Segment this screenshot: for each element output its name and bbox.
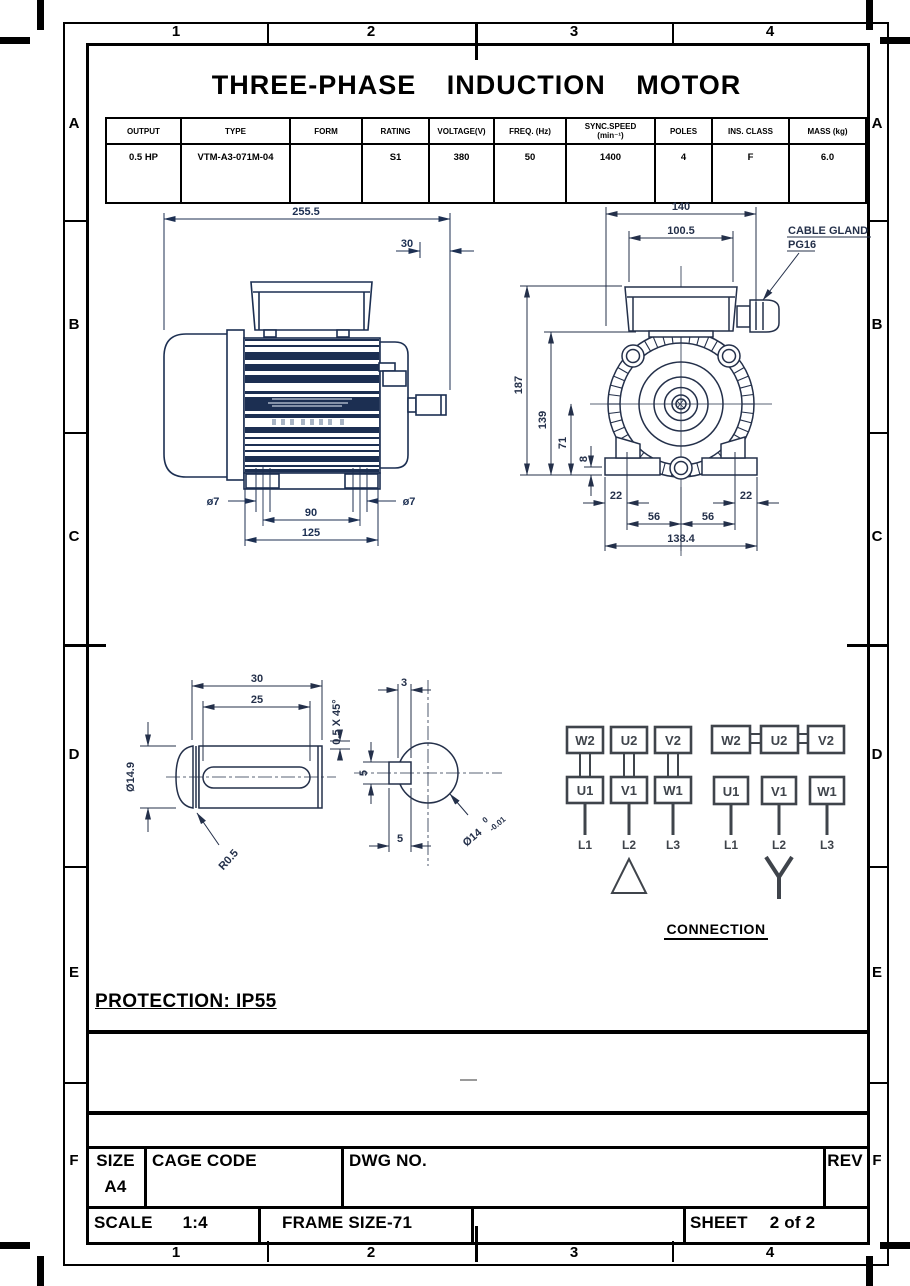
drawing-canvas: 255.5 30 ø7 ø7 90 125 [0,0,910,1286]
line-label: L1 [724,838,738,852]
dim-foot-length: 125 [302,527,320,539]
bolt-boss [718,345,740,367]
dim-box-width: 100.5 [667,225,695,237]
connection-diagram: W2 U2 V2 U1 V1 W1 L1 L2 L3 W2 U2 V2 U1 [567,726,844,939]
rev-label: REV [825,1151,865,1171]
star-connection: W2 U2 V2 U1 V1 W1 L1 L2 L3 [712,726,844,899]
terminal: W1 [663,783,683,798]
dim-height: 187 [513,376,525,394]
sheet-label: SHEET [690,1213,748,1233]
lug [379,363,395,371]
dim-width: 140 [672,201,690,213]
terminal-box-side [251,282,372,330]
line-label: L1 [578,838,592,852]
cage-code-label: CAGE CODE [152,1151,257,1171]
dim-body-top: 139 [537,411,549,429]
delta-symbol [612,859,646,893]
dim-base: 138.4 [667,533,695,545]
terminal: V1 [621,783,637,798]
protection-note: PROTECTION: IP55 [95,991,277,1013]
divider-line [86,1111,867,1115]
cable-gland [737,306,750,327]
connection-caption: CONNECTION [666,921,765,937]
terminal: V1 [771,784,787,799]
title-block-divider [471,1209,474,1242]
line-label: L2 [772,838,786,852]
terminal: W2 [575,733,595,748]
sheet-value: 2 of 2 [770,1213,816,1233]
scale-value: 1:4 [183,1213,208,1233]
size-value: A4 [89,1177,142,1197]
terminal: V2 [818,733,834,748]
dim-hole-right: ø7 [403,496,416,508]
dim-span-right: 56 [702,511,714,523]
dim-hole-span: 90 [305,507,317,519]
size-label: SIZE [89,1151,142,1171]
dim-off-left: 22 [610,490,622,502]
title-block-divider [683,1209,686,1242]
dim-shaft-length: 30 [401,238,413,250]
dim-fillet: R0.5 [217,847,241,872]
terminal-box-front [625,287,737,331]
fan-cover [164,334,229,477]
terminal: V2 [665,733,681,748]
terminal: W2 [721,733,741,748]
shaft-side-detail: 30 25 0.5 X 45° Ø14.9 R0.5 [125,673,350,873]
dim-span-left: 56 [648,511,660,523]
title-block-top-line [86,1146,867,1149]
drawing-sheet: 1 2 3 4 1 2 3 4 A B C D E F A B C D E F … [0,0,910,1286]
svg-text:Ø14: Ø14 [461,826,485,849]
terminal: U2 [621,733,638,748]
dim-shaft-dia: Ø14.9 [125,762,137,792]
dim-key-depth: 3 [401,677,407,689]
dim-off-right: 22 [740,490,752,502]
fan-cover-flange [227,330,244,480]
foot-right [702,458,757,475]
terminal: U2 [771,733,788,748]
dwg-no-label: DWG NO. [349,1151,427,1171]
terminal: U1 [577,783,594,798]
title-block-divider [144,1149,147,1206]
bolt-boss [622,345,644,367]
dim-key-width: 5 [358,770,370,776]
title-block-mid-line [86,1206,867,1209]
foot-left [605,458,660,475]
dim-overall-length: 255.5 [292,206,320,218]
svg-text:-0.01: -0.01 [488,814,508,833]
shaft-end-dimensions: 3 5 5 Ø14 0 -0.01 [358,677,508,852]
dim-hole-left: ø7 [207,496,220,508]
dim-key-width-bottom: 5 [397,833,403,845]
front-view-dimensions: 140 100.5 CABLE GLAND PG16 187 139 71 [513,201,871,551]
line-label: L3 [666,838,680,852]
dim-pad: 8 [578,456,590,462]
motor-side-view: 255.5 30 ø7 ø7 90 125 [164,206,474,546]
shaft-end-detail: 3 5 5 Ø14 0 -0.01 [354,677,508,866]
terminal: U1 [723,784,740,799]
cable-gland-label: CABLE GLAND [788,225,868,237]
dim-axis-height: 71 [557,437,569,449]
terminal: W1 [817,784,837,799]
frame-size-label: FRAME SIZE-71 [282,1213,412,1233]
dim-key-len: 25 [251,694,263,706]
lug [383,371,406,386]
dim-chamfer: 0.5 X 45° [331,699,343,744]
motor-front-view: 140 100.5 CABLE GLAND PG16 187 139 71 [513,201,871,556]
dim-shaft-len: 30 [251,673,263,685]
line-label: L3 [820,838,834,852]
delta-connection: W2 U2 V2 U1 V1 W1 L1 L2 L3 [567,727,691,893]
svg-text:0: 0 [481,815,491,825]
bolt-boss-bottom [670,457,692,479]
star-symbol [766,857,792,899]
cable-gland-size: PG16 [788,239,816,251]
shaft-step [408,398,416,412]
front-endbell [380,342,408,468]
cable-gland [750,300,779,332]
scale-field: SCALE1:4 [94,1213,208,1233]
divider-line [86,1030,867,1034]
title-block-divider [258,1209,261,1242]
title-block-divider [341,1149,344,1206]
line-label: L2 [622,838,636,852]
scale-label: SCALE [94,1213,153,1233]
sheet-field: SHEET2 of 2 [690,1213,815,1233]
